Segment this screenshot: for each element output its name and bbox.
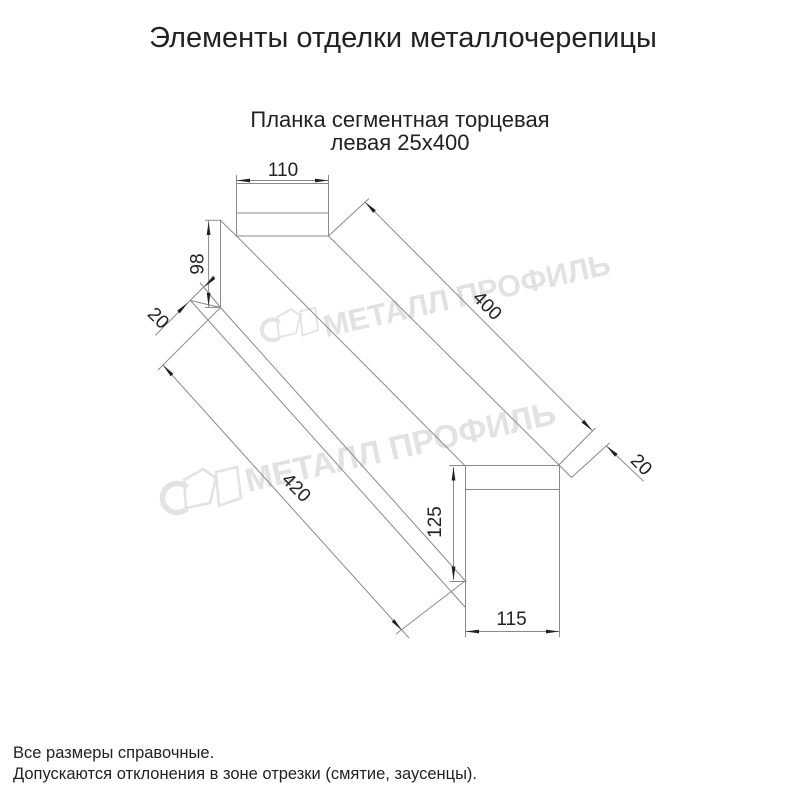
svg-text:115: 115 [496,609,526,630]
svg-text:МЕТАЛЛ ПРОФИЛЬ: МЕТАЛЛ ПРОФИЛЬ [320,247,613,344]
svg-text:98: 98 [188,253,209,274]
svg-text:20: 20 [626,450,656,480]
svg-text:110: 110 [268,160,298,181]
svg-text:125: 125 [425,506,446,538]
svg-text:20: 20 [143,304,173,334]
